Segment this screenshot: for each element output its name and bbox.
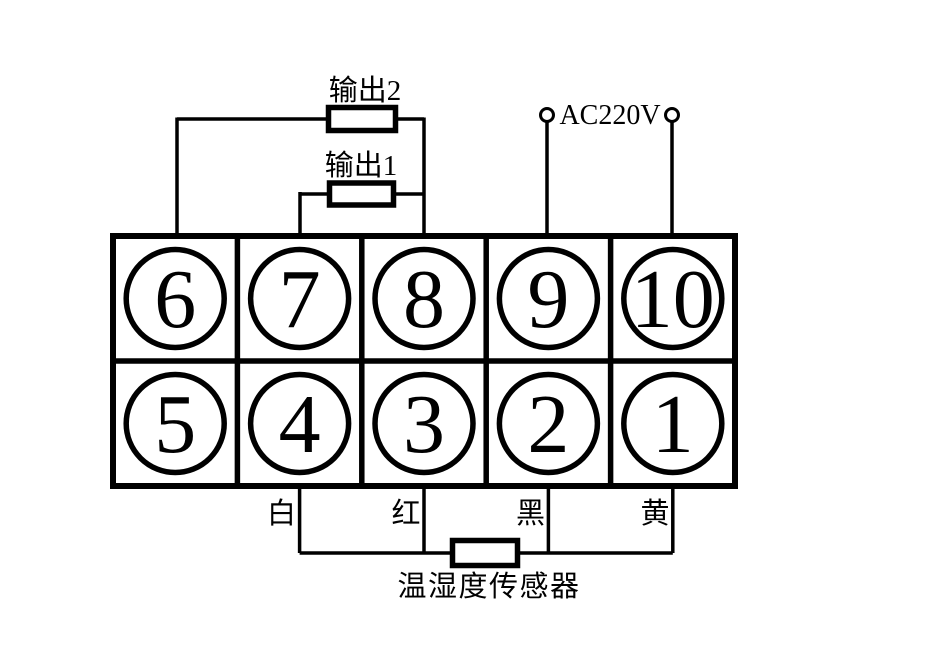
sensor-symbol — [453, 541, 518, 566]
output1-load-symbol — [330, 183, 394, 205]
terminal-1: 1 — [624, 375, 722, 473]
output1-label: 输出1 — [325, 149, 398, 182]
terminal-5-number: 5 — [154, 378, 196, 471]
wire-label-black: 黑 — [516, 498, 545, 530]
wiring-diagram: 输出2 输出1 AC220V 白 红 黑 黄 温湿度传感器 — [0, 0, 932, 670]
terminal-10: 10 — [624, 250, 722, 348]
terminal-2-number: 2 — [527, 378, 569, 471]
terminal-9-number: 9 — [527, 253, 569, 346]
output1-circuit: 输出1 — [300, 149, 424, 239]
terminal-3-number: 3 — [403, 378, 445, 471]
sensor-label: 温湿度传感器 — [397, 570, 580, 603]
terminal-8: 8 — [375, 250, 473, 348]
ac-terminal-left-icon — [541, 109, 554, 122]
terminal-1-number: 1 — [652, 378, 694, 471]
ac-power-circuit: AC220V — [541, 100, 679, 239]
terminal-7: 7 — [251, 250, 349, 348]
ac-terminal-right-icon — [666, 109, 679, 122]
terminal-5: 5 — [126, 375, 224, 473]
terminal-block: 6 7 8 9 10 5 4 3 — [113, 236, 735, 486]
output2-label: 输出2 — [329, 74, 402, 107]
output2-load-symbol — [329, 108, 396, 131]
terminal-6-number: 6 — [154, 253, 196, 346]
sensor-circuit: 白 红 黑 黄 温湿度传感器 — [267, 484, 673, 603]
terminal-4-number: 4 — [279, 378, 321, 471]
terminal-3: 3 — [375, 375, 473, 473]
wire-label-white: 白 — [267, 497, 296, 530]
terminal-8-number: 8 — [403, 253, 445, 346]
terminal-10-number: 10 — [631, 253, 715, 346]
wiring-diagram-canvas: 输出2 输出1 AC220V 白 红 黑 黄 温湿度传感器 — [0, 0, 932, 670]
terminal-2: 2 — [499, 375, 597, 473]
wire-label-yellow: 黄 — [640, 497, 669, 530]
terminal-9: 9 — [499, 250, 597, 348]
terminal-4: 4 — [251, 375, 349, 473]
terminal-7-number: 7 — [279, 253, 321, 346]
wire-label-red: 红 — [391, 497, 420, 530]
terminal-6: 6 — [126, 250, 224, 348]
ac-power-label: AC220V — [559, 100, 660, 131]
